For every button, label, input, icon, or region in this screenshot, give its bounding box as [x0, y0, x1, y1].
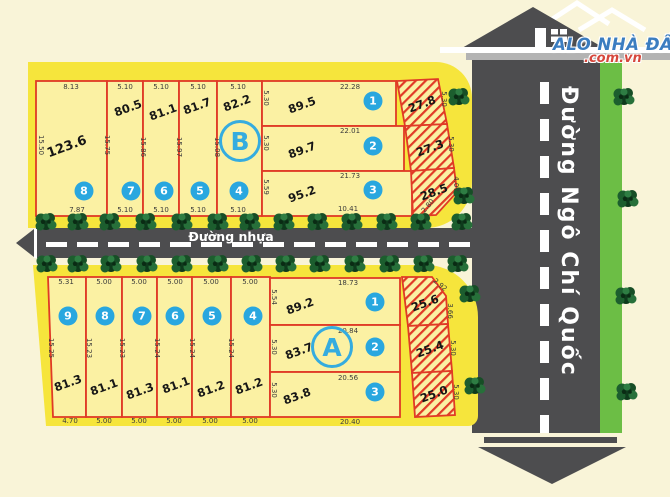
- plot-number-badge: 7: [133, 307, 152, 326]
- dim-side: 15.50: [37, 135, 45, 155]
- dim-side: 5.59: [262, 179, 270, 195]
- lane-dash: [387, 242, 408, 247]
- dim-top: 5.00: [167, 278, 183, 286]
- dim-bottom: 5.10: [153, 206, 169, 214]
- dim-side: 5.30: [447, 136, 455, 152]
- dim-top: 5.31: [58, 278, 74, 286]
- dim-side: 15.75: [103, 135, 111, 155]
- land-plot-map: Đường nhựa Đường Ngô Chí Quốc: [0, 0, 670, 497]
- dim-top: 22.28: [340, 83, 360, 91]
- plot-number-badge: 3: [366, 383, 385, 402]
- dim-bottom: 5.00: [131, 417, 147, 425]
- dim-top: 5.10: [153, 83, 169, 91]
- plot-number-badge: 1: [366, 293, 385, 312]
- dim-top: 5.10: [230, 83, 246, 91]
- dim-side: 5.30: [452, 384, 460, 400]
- road-arrow-gap: [34, 229, 37, 258]
- dim-side: 15.25: [47, 338, 55, 358]
- road-stop-bar: [484, 437, 617, 443]
- lane-dash: [540, 304, 549, 326]
- dim-side: 15.86: [139, 137, 147, 157]
- dim-top: 5.00: [203, 278, 219, 286]
- lane-dash: [108, 242, 129, 247]
- plot-number-badge: 4: [230, 182, 249, 201]
- lane-dash: [77, 242, 98, 247]
- block-b-badge: B: [219, 120, 261, 162]
- plot-number-badge: 6: [166, 307, 185, 326]
- plot-number-badge: 5: [203, 307, 222, 326]
- plot-number-badge: 1: [364, 92, 383, 111]
- road-arrow-left-icon: [16, 229, 34, 257]
- dim-bottom: 5.10: [117, 206, 133, 214]
- dim-side: 15.97: [175, 137, 183, 157]
- dim-side: 15.23: [118, 338, 126, 358]
- lane-dash: [540, 267, 549, 289]
- logo-domain: .com.vn: [584, 51, 642, 66]
- lane-dash: [540, 156, 549, 178]
- logo-roofline-outline-2: [579, 10, 645, 30]
- dim-top: 8.13: [63, 83, 79, 91]
- plot-number-badge: 7: [122, 182, 141, 201]
- dim-side: 5.30: [262, 90, 270, 106]
- dim-top: 22.01: [340, 127, 360, 135]
- plot-number-badge: 8: [75, 182, 94, 201]
- dim-side: 15.24: [227, 338, 235, 358]
- lane-dash: [540, 378, 549, 400]
- dim-top: 21.73: [340, 172, 360, 180]
- dim-top: 5.10: [117, 83, 133, 91]
- dim-bottom: 5.00: [166, 417, 182, 425]
- plot-number-badge: 4: [244, 307, 263, 326]
- lane-dash: [540, 230, 549, 252]
- lane-dash: [418, 242, 439, 247]
- lane-dash: [540, 193, 549, 215]
- dim-bottom: 10.41: [338, 205, 358, 213]
- lane-dash: [540, 119, 549, 141]
- dim-bottom: 5.00: [96, 417, 112, 425]
- road-arrow-down-icon: [478, 447, 626, 484]
- dim-side: 3.66: [446, 303, 454, 319]
- block-a-badge: A: [311, 326, 353, 368]
- plot-number-badge: 9: [59, 307, 78, 326]
- lane-dash: [540, 415, 549, 433]
- logo-roofline-outline-1: [545, 3, 609, 24]
- block-a-ground: [33, 265, 478, 426]
- lane-dash: [356, 242, 377, 247]
- dim-bottom: 20.40: [340, 418, 360, 426]
- vertical-road-name: Đường Ngô Chí Quốc: [556, 86, 581, 377]
- plot-number-badge: 2: [366, 338, 385, 357]
- lane-dash: [294, 242, 315, 247]
- dim-side: 4.07: [452, 176, 460, 192]
- dim-top: 18.73: [338, 279, 358, 287]
- lane-dash: [449, 242, 470, 247]
- plot-number-badge: 6: [155, 182, 174, 201]
- dim-side: 5.30: [262, 135, 270, 151]
- lane-dash: [46, 242, 67, 247]
- dim-side: 5.30: [449, 340, 457, 356]
- lane-dash: [540, 341, 549, 363]
- lane-dash: [325, 242, 346, 247]
- plot-number-badge: 2: [364, 137, 383, 156]
- dim-bottom: 7.87: [69, 206, 85, 214]
- horizontal-road-name: Đường nhựa: [186, 229, 276, 244]
- dim-side: 5.54: [270, 289, 278, 305]
- dim-top: 5.00: [131, 278, 147, 286]
- dim-bottom: 4.70: [62, 417, 78, 425]
- dim-side: 15.24: [188, 338, 196, 358]
- dim-bottom: 5.10: [190, 206, 206, 214]
- dim-bottom: 5.00: [242, 417, 258, 425]
- dim-top: 5.00: [96, 278, 112, 286]
- dim-side: 15.23: [85, 338, 93, 358]
- plot-number-badge: 8: [96, 307, 115, 326]
- roadside-green-strip: [600, 60, 622, 433]
- lane-dash: [540, 82, 549, 104]
- dim-bottom: 5.10: [230, 206, 246, 214]
- dim-bottom: 5.00: [202, 417, 218, 425]
- plot-number-badge: 3: [364, 181, 383, 200]
- plot-number-badge: 5: [191, 182, 210, 201]
- dim-top: 20.56: [338, 374, 358, 382]
- lane-dash: [139, 242, 160, 247]
- dim-side: 5.30: [270, 339, 278, 355]
- dim-top: 5.00: [242, 278, 258, 286]
- dim-top: 5.10: [190, 83, 206, 91]
- dim-side: 5.30: [270, 382, 278, 398]
- dim-side: 5.30: [440, 91, 448, 107]
- dim-side: 15.24: [153, 338, 161, 358]
